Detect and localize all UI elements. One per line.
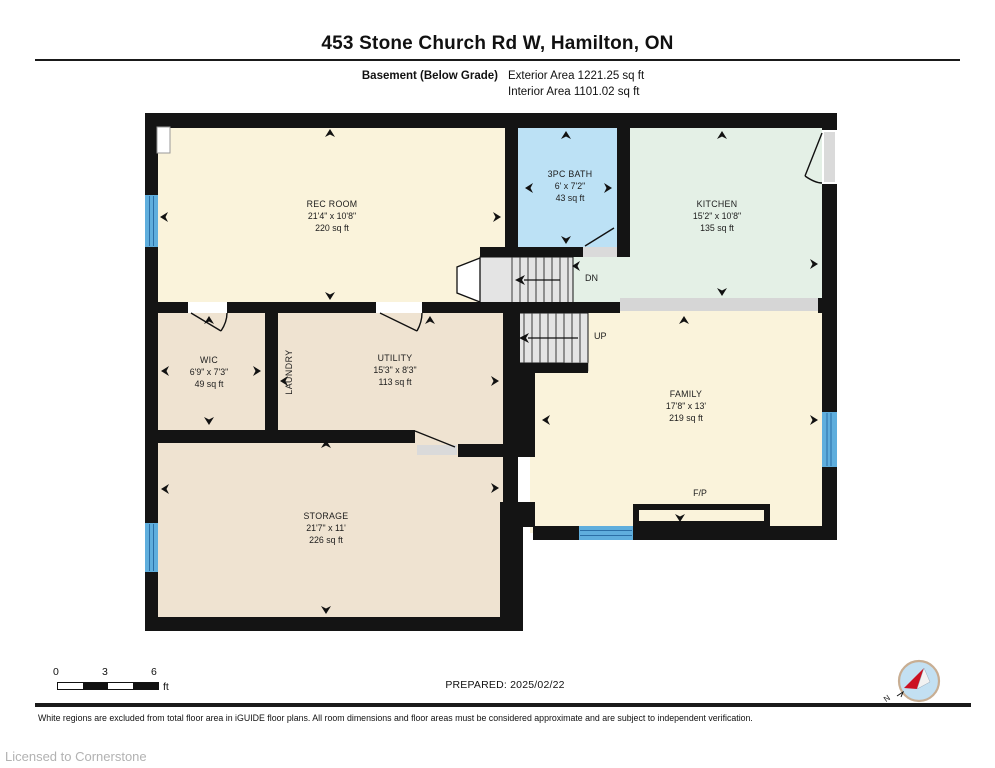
scale-segment — [108, 683, 133, 689]
room-label-rec-room: REC ROOM 21'4" x 10'8" 220 sq ft — [262, 199, 402, 235]
stairs-down — [480, 257, 573, 303]
laundry-label: LAUNDRY — [284, 332, 294, 412]
scale-bar — [57, 682, 159, 690]
wall — [145, 617, 523, 631]
wall — [500, 527, 523, 631]
wall — [145, 430, 415, 443]
scale-tick-0: 0 — [53, 666, 59, 678]
wall — [520, 373, 535, 457]
door-opening — [376, 302, 422, 313]
stairs-dn-label: DN — [585, 273, 598, 283]
bulkhead-strip — [620, 298, 818, 311]
compass — [897, 661, 939, 701]
scale-segment — [133, 683, 158, 689]
wall — [818, 298, 837, 313]
wall — [145, 113, 837, 128]
wall — [533, 526, 837, 540]
scale-tick-3: 3 — [102, 666, 108, 678]
window-notch — [157, 127, 170, 153]
disclaimer-text: White regions are excluded from total fl… — [38, 713, 958, 723]
window — [145, 523, 158, 572]
door-leaf — [824, 132, 835, 182]
wall — [500, 502, 535, 527]
room-label-family: FAMILY 17'8" x 13' 219 sq ft — [616, 389, 756, 425]
scale-tick-6: 6 — [151, 666, 157, 678]
fireplace — [636, 507, 767, 524]
room-label-kitchen: KITCHEN 15'2" x 10'8" 135 sq ft — [647, 199, 787, 235]
compass-north-arrow — [897, 692, 903, 697]
scale-segment — [58, 683, 83, 689]
door-leaf — [583, 247, 617, 257]
prepared-date: PREPARED: 2025/02/22 — [355, 679, 655, 691]
fireplace-label: F/P — [670, 488, 730, 498]
wall — [503, 457, 518, 505]
room-label-storage: STORAGE 21'7" x 11' 226 sq ft — [256, 511, 396, 547]
footer-divider — [35, 703, 971, 707]
window — [822, 412, 837, 467]
stairs-up-label: UP — [594, 331, 607, 341]
wall — [503, 313, 520, 457]
room-label-bath: 3PC BATH 6' x 7'2" 43 sq ft — [500, 169, 640, 205]
room-label-wic: WIC 6'9" x 7'3" 49 sq ft — [139, 355, 279, 391]
license-text: Licensed to Cornerstone — [5, 749, 147, 764]
window — [579, 526, 633, 540]
wall — [503, 363, 588, 373]
stairs-up — [517, 313, 588, 371]
room-label-utility: UTILITY 15'3" x 8'3" 113 sq ft — [325, 353, 465, 389]
window — [145, 195, 158, 247]
scale-unit: ft — [163, 681, 169, 693]
door-leaf — [417, 445, 457, 455]
door-opening — [188, 302, 227, 313]
scale-segment — [83, 683, 108, 689]
kitchen-hall-floor — [570, 250, 630, 305]
